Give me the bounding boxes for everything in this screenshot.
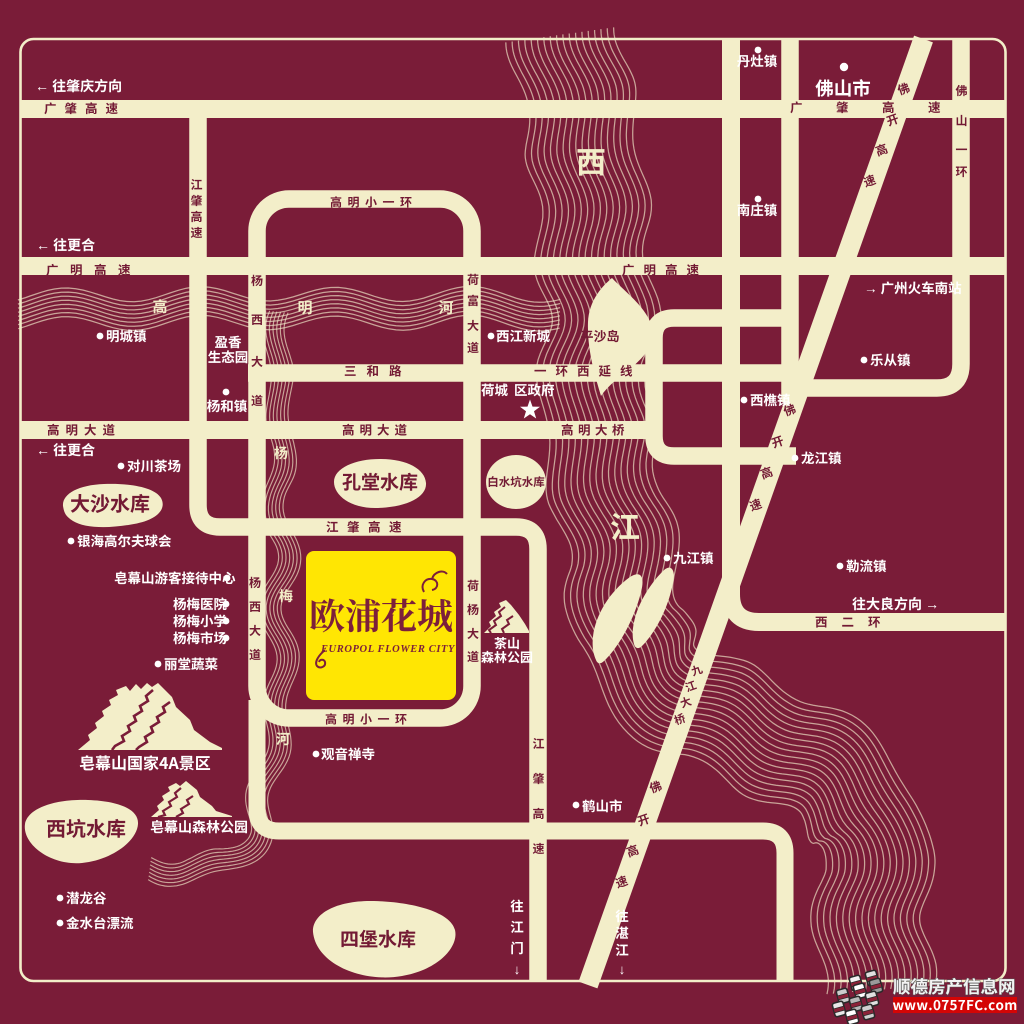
svg-text:江: 江 (532, 735, 544, 752)
svg-text:肇: 肇 (532, 770, 544, 787)
svg-text:九江镇: 九江镇 (673, 547, 714, 567)
svg-text:← 往更合: ← 往更合 (36, 235, 95, 255)
svg-text:区政府: 区政府 (514, 379, 555, 399)
svg-text:高明小一环: 高明小一环 (330, 194, 418, 211)
svg-text:高: 高 (152, 296, 167, 317)
svg-text:EUROPOL FLOWER CITY: EUROPOL FLOWER CITY (320, 644, 456, 655)
svg-text:← 往更合: ← 往更合 (36, 440, 95, 460)
svg-text:西樵镇: 西樵镇 (750, 389, 791, 409)
svg-text:大: 大 (467, 625, 479, 642)
svg-text:杨: 杨 (251, 272, 263, 289)
svg-text:高明小一环: 高明小一环 (325, 711, 413, 728)
svg-text:道: 道 (249, 646, 261, 663)
svg-text:↓: ↓ (619, 958, 626, 978)
svg-text:观音禅寺: 观音禅寺 (321, 743, 375, 763)
svg-text:杨: 杨 (249, 574, 261, 591)
svg-text:森林公园: 森林公园 (481, 647, 533, 666)
svg-text:广肇高速: 广肇高速 (44, 98, 126, 117)
svg-text:→ 广州火车南站: → 广州火车南站 (864, 277, 962, 297)
svg-text:皂幕山国家4A景区: 皂幕山国家4A景区 (79, 750, 211, 774)
svg-text:↓: ↓ (514, 958, 521, 978)
svg-text:三和路: 三和路 (344, 361, 412, 380)
svg-text:江: 江 (190, 176, 202, 193)
svg-text:皂幕山森林公园: 皂幕山森林公园 (150, 817, 248, 837)
svg-text:www.0757FC.com: www.0757FC.com (892, 994, 1017, 1014)
svg-text:大沙水库: 大沙水库 (70, 488, 150, 517)
svg-text:速: 速 (190, 224, 202, 241)
svg-text:孔堂水库: 孔堂水库 (342, 468, 418, 495)
svg-text:南庄镇: 南庄镇 (737, 199, 778, 219)
svg-text:龙江镇: 龙江镇 (801, 447, 842, 467)
svg-text:江: 江 (615, 939, 629, 959)
svg-text:银海高尔夫球会: 银海高尔夫球会 (77, 530, 172, 550)
svg-text:一: 一 (955, 141, 967, 158)
svg-text:高: 高 (190, 208, 202, 225)
svg-text:高明大桥: 高明大桥 (561, 420, 629, 439)
svg-text:河: 河 (438, 297, 453, 318)
svg-text:道: 道 (251, 392, 263, 409)
svg-text:高: 高 (532, 805, 544, 822)
svg-text:道: 道 (467, 648, 479, 665)
svg-text:金水台漂流: 金水台漂流 (66, 912, 134, 932)
svg-text:道: 道 (467, 339, 479, 356)
svg-text:荷城: 荷城 (481, 379, 508, 399)
svg-text:广明高速: 广明高速 (622, 260, 708, 279)
svg-text:西: 西 (251, 311, 263, 328)
svg-text:乐从镇: 乐从镇 (870, 349, 911, 369)
svg-text:西: 西 (249, 598, 261, 615)
svg-text:皂幕山游客接待中心: 皂幕山游客接待中心 (114, 567, 236, 587)
svg-text:杨和镇: 杨和镇 (207, 395, 248, 415)
svg-text:西二环: 西二环 (815, 612, 895, 631)
svg-text:丽堂蔬菜: 丽堂蔬菜 (164, 653, 218, 673)
svg-text:明: 明 (297, 297, 312, 318)
svg-text:佛山市: 佛山市 (815, 75, 871, 101)
svg-text:杨: 杨 (274, 443, 288, 463)
svg-text:一环西延线: 一环西延线 (534, 361, 642, 380)
svg-text:江: 江 (610, 503, 640, 547)
svg-text:西坑水库: 西坑水库 (46, 813, 126, 842)
svg-text:← 往肇庆方向: ← 往肇庆方向 (35, 76, 122, 96)
svg-text:平沙岛: 平沙岛 (580, 326, 619, 345)
svg-text:大: 大 (251, 353, 263, 370)
svg-text:丹灶镇: 丹灶镇 (737, 50, 778, 70)
svg-text:门: 门 (510, 937, 524, 957)
svg-text:西: 西 (576, 138, 606, 182)
svg-text:潜龙谷: 潜龙谷 (66, 887, 107, 907)
svg-text:生态园: 生态园 (208, 346, 249, 366)
svg-text:往: 往 (510, 895, 524, 915)
svg-text:荷: 荷 (467, 271, 479, 288)
svg-text:高明大道: 高明大道 (342, 420, 412, 439)
svg-text:速: 速 (532, 840, 544, 857)
svg-text:白水坑水库: 白水坑水库 (487, 474, 545, 490)
svg-text:江肇高速: 江肇高速 (326, 517, 410, 536)
svg-text:高明大道: 高明大道 (47, 420, 121, 439)
svg-text:杨梅市场: 杨梅市场 (173, 627, 227, 647)
svg-text:西江新城: 西江新城 (496, 325, 550, 345)
svg-text:佛: 佛 (955, 82, 967, 99)
svg-text:大: 大 (467, 317, 479, 334)
svg-text:鹤山市: 鹤山市 (582, 795, 623, 815)
svg-text:欧浦花城: 欧浦花城 (309, 589, 453, 640)
svg-text:山: 山 (955, 112, 967, 129)
svg-text:荷: 荷 (467, 577, 479, 594)
svg-text:江: 江 (510, 916, 524, 936)
svg-text:明城镇: 明城镇 (106, 325, 147, 345)
svg-text:四堡水库: 四堡水库 (340, 925, 416, 952)
svg-text:大: 大 (249, 622, 261, 639)
svg-text:肇: 肇 (190, 192, 202, 209)
svg-text:梅: 梅 (279, 586, 293, 606)
svg-text:富: 富 (467, 292, 479, 309)
svg-text:勒流镇: 勒流镇 (846, 555, 887, 575)
svg-text:广明高速: 广明高速 (46, 260, 142, 279)
svg-text:对川茶场: 对川茶场 (127, 455, 181, 475)
svg-text:杨: 杨 (467, 601, 479, 618)
svg-text:环: 环 (955, 163, 967, 180)
svg-text:河: 河 (276, 729, 290, 749)
